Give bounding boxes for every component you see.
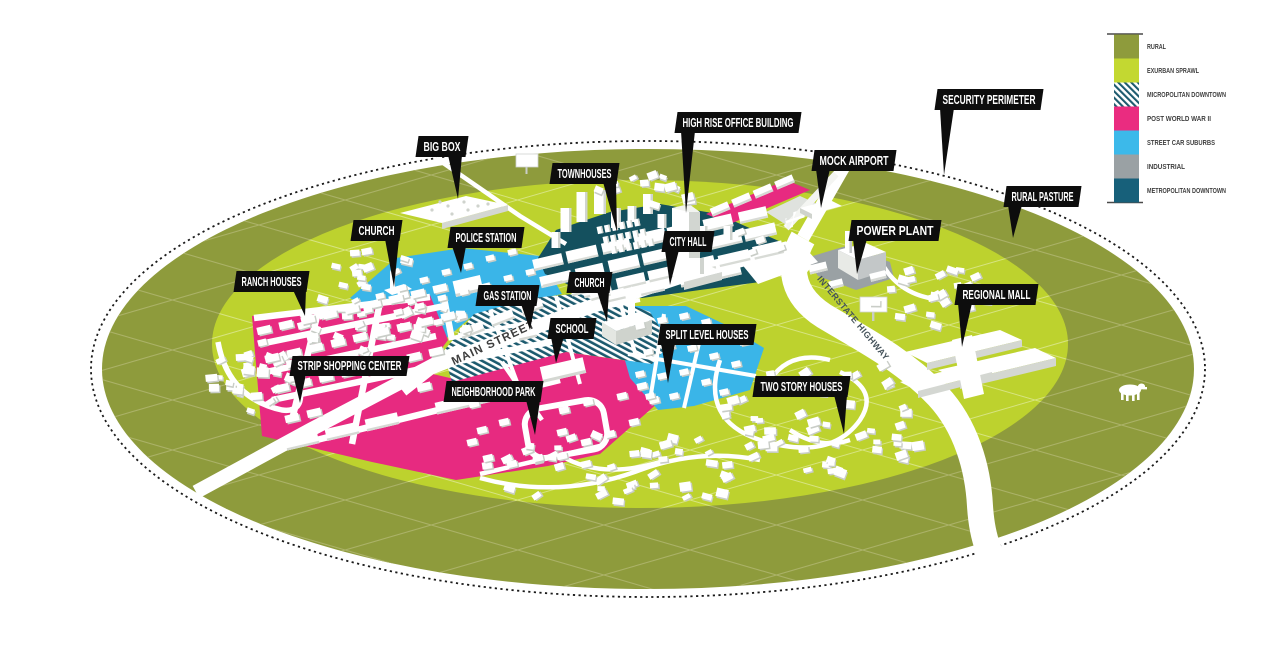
- svg-text:TOWNHOUSES: TOWNHOUSES: [558, 166, 612, 181]
- svg-text:SECURITY PERIMETER: SECURITY PERIMETER: [943, 92, 1036, 107]
- svg-text:REGIONAL MALL: REGIONAL MALL: [963, 287, 1031, 302]
- svg-text:BIG BOX: BIG BOX: [424, 139, 461, 154]
- svg-text:CHURCH: CHURCH: [359, 223, 395, 238]
- svg-text:RANCH HOUSES: RANCH HOUSES: [242, 274, 302, 289]
- svg-text:POLICE STATION: POLICE STATION: [456, 230, 517, 245]
- svg-text:MOCK AIRPORT: MOCK AIRPORT: [820, 153, 889, 168]
- svg-text:TWO STORY HOUSES: TWO STORY HOUSES: [761, 379, 843, 394]
- svg-text:STRIP SHOPPING CENTER: STRIP SHOPPING CENTER: [298, 358, 402, 373]
- svg-text:POWER PLANT: POWER PLANT: [857, 223, 934, 238]
- svg-text:RURAL: RURAL: [1147, 44, 1167, 51]
- svg-text:METROPOLITAN DOWNTOWN: METROPOLITAN DOWNTOWN: [1147, 188, 1226, 195]
- svg-text:CHURCH: CHURCH: [575, 275, 605, 290]
- svg-text:NEIGHBORHOOD PARK: NEIGHBORHOOD PARK: [452, 384, 536, 399]
- svg-text:MICROPOLITAN DOWNTOWN: MICROPOLITAN DOWNTOWN: [1147, 92, 1226, 99]
- svg-text:INDUSTRIAL: INDUSTRIAL: [1147, 164, 1186, 171]
- svg-text:STREET CAR SUBURBS: STREET CAR SUBURBS: [1147, 140, 1215, 147]
- svg-text:CITY HALL: CITY HALL: [670, 234, 707, 249]
- svg-text:HIGH RISE OFFICE BUILDING: HIGH RISE OFFICE BUILDING: [683, 115, 794, 130]
- svg-text:SCHOOL: SCHOOL: [556, 321, 589, 336]
- svg-text:EXURBAN SPRAWL: EXURBAN SPRAWL: [1147, 68, 1200, 75]
- svg-text:SPLIT LEVEL HOUSES: SPLIT LEVEL HOUSES: [666, 327, 749, 342]
- svg-text:RURAL PASTURE: RURAL PASTURE: [1012, 189, 1074, 204]
- svg-text:GAS STATION: GAS STATION: [484, 288, 532, 303]
- svg-text:POST WORLD WAR II: POST WORLD WAR II: [1147, 116, 1211, 123]
